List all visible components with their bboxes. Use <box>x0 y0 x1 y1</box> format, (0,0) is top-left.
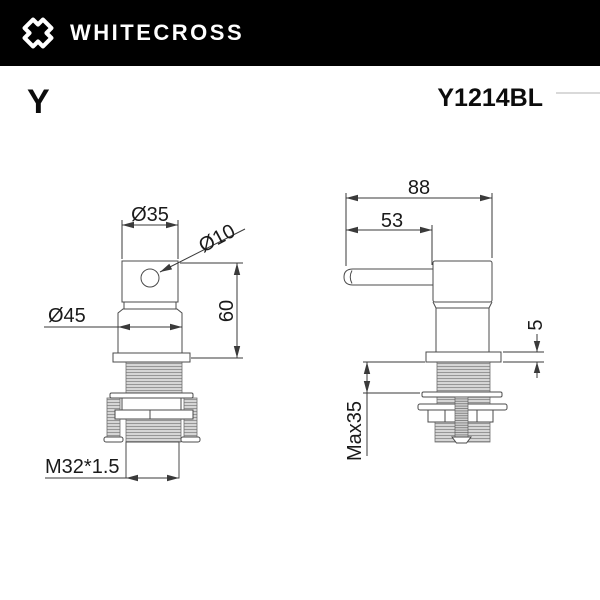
front-view-drawing: Ø35 Ø10 Ø45 60 M32*1.5 <box>44 204 245 481</box>
dim-label-thread-spec: M32*1.5 <box>45 456 120 478</box>
dim-overall-length: 88 <box>346 177 492 266</box>
front-thread-lower <box>126 419 181 442</box>
dim-lever-length: 53 <box>346 210 432 265</box>
side-rod <box>455 397 468 437</box>
side-view-drawing: 88 53 5 Max35 <box>344 177 547 461</box>
dim-label-flange-thickness: 5 <box>525 319 547 330</box>
brand-name: WHITECROSS <box>70 20 244 46</box>
side-neck-chamfer <box>433 302 492 308</box>
dim-body-height: 60 <box>180 263 243 358</box>
dim-label-lever-length: 53 <box>381 210 403 232</box>
dim-flange-thickness: 5 <box>503 319 547 378</box>
front-stud-foot-right <box>181 437 200 442</box>
front-thread-upper <box>126 362 182 393</box>
side-lever <box>344 269 433 285</box>
dim-label-body-diameter: Ø45 <box>48 305 86 327</box>
dim-label-body-height: 60 <box>216 300 238 322</box>
model-code: Y1214BL <box>437 84 543 113</box>
front-lever-hole <box>141 269 159 287</box>
brand-header: WHITECROSS <box>0 0 600 66</box>
front-tube-mid <box>122 398 181 410</box>
front-flange <box>113 353 190 362</box>
dim-mounting-max: Max35 <box>344 362 425 461</box>
side-body <box>433 261 492 302</box>
front-tube-bottom <box>126 442 179 478</box>
dim-label-overall-length: 88 <box>408 177 430 199</box>
front-stud-foot-left <box>104 437 123 442</box>
dim-hub-diameter: Ø35 <box>122 204 178 259</box>
side-thread-upper <box>437 362 490 392</box>
side-flange <box>426 352 501 362</box>
dim-label-mounting-max: Max35 <box>344 401 366 461</box>
x-cross-logo-icon <box>16 11 60 55</box>
dim-label-lever-diameter: Ø10 <box>195 220 239 257</box>
side-body-mid <box>436 308 489 352</box>
front-nut <box>115 410 193 419</box>
front-neck <box>124 302 176 309</box>
series-label: Y <box>27 83 50 122</box>
front-collar <box>118 309 182 353</box>
front-washer <box>110 393 193 398</box>
dim-label-hub-diameter: Ø35 <box>131 204 169 226</box>
side-washer <box>422 392 502 397</box>
title-divider-line <box>556 92 600 94</box>
